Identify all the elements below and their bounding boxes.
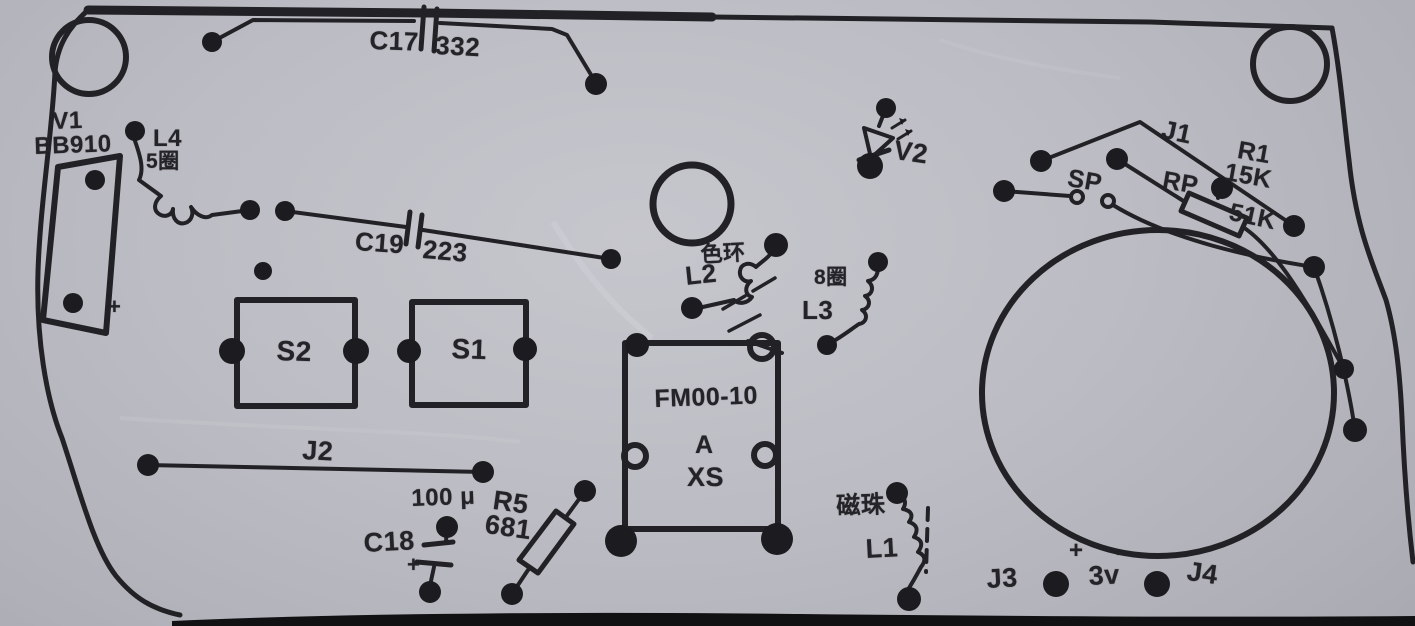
pad <box>993 180 1015 202</box>
label-c17: C17 <box>369 27 419 55</box>
board-edge-top-left <box>88 10 712 17</box>
label-j3: J3 <box>986 564 1018 593</box>
pad <box>472 461 494 483</box>
label-j2: J2 <box>302 437 334 466</box>
pad <box>625 333 649 357</box>
pad <box>63 293 83 313</box>
label-l2: L2 <box>684 260 718 289</box>
pad <box>585 73 607 95</box>
pad <box>876 98 896 118</box>
pad <box>419 581 441 603</box>
pad <box>240 200 260 220</box>
board-edge-right <box>1332 28 1413 562</box>
board-outline <box>38 10 1413 615</box>
mounting-hole-top-right <box>1253 27 1327 101</box>
pad <box>764 233 788 257</box>
label-module-name: FM00-10 <box>654 383 758 412</box>
pad <box>1043 571 1069 597</box>
c19-capacitor-plate <box>418 215 422 247</box>
pad <box>1303 256 1325 278</box>
pad <box>761 523 793 555</box>
c19-capacitor-plate <box>406 212 410 244</box>
label-v1-plus: + <box>108 296 121 318</box>
label-c18-value: 100 μ <box>411 485 476 511</box>
label-module-a: A <box>695 433 714 458</box>
pad <box>886 482 908 504</box>
pad <box>1334 359 1354 379</box>
mounting-hole-center <box>653 165 731 243</box>
l2-color-ring-dash <box>729 315 760 331</box>
pad <box>574 480 596 502</box>
label-l4-turns: 5圈 <box>146 151 180 172</box>
label-l4: L4 <box>153 127 182 151</box>
label-j1: J1 <box>1160 116 1195 148</box>
mounting-hole-top-left <box>52 20 126 94</box>
pad <box>343 338 369 364</box>
pad <box>681 297 703 319</box>
pad <box>1144 571 1170 597</box>
label-c19: C19 <box>354 228 405 257</box>
trace-j2 <box>148 465 483 472</box>
label-c19-value: 223 <box>422 236 469 266</box>
pad <box>125 121 145 141</box>
label-module-xs: XS <box>687 464 724 491</box>
pad <box>857 153 883 179</box>
label-l3-turns: 8圈 <box>814 267 848 288</box>
pad <box>817 335 837 355</box>
label-rp: RP <box>1161 168 1201 199</box>
paper-crease <box>120 40 1120 442</box>
label-batt-plus: + <box>1069 539 1084 563</box>
pad <box>397 339 421 363</box>
c18-plate <box>424 542 453 545</box>
pad <box>1283 215 1305 237</box>
label-j4: J4 <box>1185 558 1220 589</box>
label-l1-note: 磁珠 <box>836 493 886 519</box>
pad <box>601 249 621 269</box>
label-l1: L1 <box>865 534 899 563</box>
label-v1: V1 <box>52 109 83 134</box>
l1-coil <box>897 493 924 588</box>
photo-bottom-edge <box>172 613 1415 626</box>
pad <box>275 201 295 221</box>
c17-capacitor-plate <box>421 7 424 49</box>
label-s1: S1 <box>451 335 487 364</box>
pad <box>254 262 272 280</box>
label-l3: L3 <box>802 297 833 323</box>
label-v2: V2 <box>892 137 929 168</box>
pad <box>137 454 159 476</box>
l1-core-dashed <box>926 508 928 572</box>
pad <box>897 587 921 611</box>
pad <box>1343 418 1367 442</box>
l2-color-ring-dash <box>753 278 775 291</box>
pad <box>1106 148 1128 170</box>
label-c17-value: 332 <box>435 32 481 60</box>
pad <box>501 583 523 605</box>
pad <box>85 170 105 190</box>
pad <box>605 525 637 557</box>
c18-plate <box>417 562 451 565</box>
pad <box>513 337 537 361</box>
label-c18-plus: + <box>407 554 420 576</box>
pad <box>868 252 888 272</box>
board-edge-top-right <box>712 17 1332 28</box>
label-v1-part: BB910 <box>34 132 112 159</box>
label-r5-value: 681 <box>483 511 533 544</box>
pcb-layout-photo: C17 332 V1 BB910 + L4 5圈 C19 223 S2 S1 色… <box>0 0 1415 626</box>
pad <box>1030 150 1052 172</box>
pcb-artwork <box>0 0 1415 626</box>
pad <box>436 516 458 538</box>
module-hole-right <box>754 444 776 466</box>
label-batt-voltage: 3v <box>1088 561 1120 590</box>
pad <box>202 32 222 52</box>
label-sp: SP <box>1066 166 1104 197</box>
pad <box>219 338 245 364</box>
c18-lead <box>431 567 434 581</box>
trace-c19-left <box>285 211 406 227</box>
label-s2: S2 <box>276 337 312 366</box>
speaker-outline <box>982 230 1334 556</box>
